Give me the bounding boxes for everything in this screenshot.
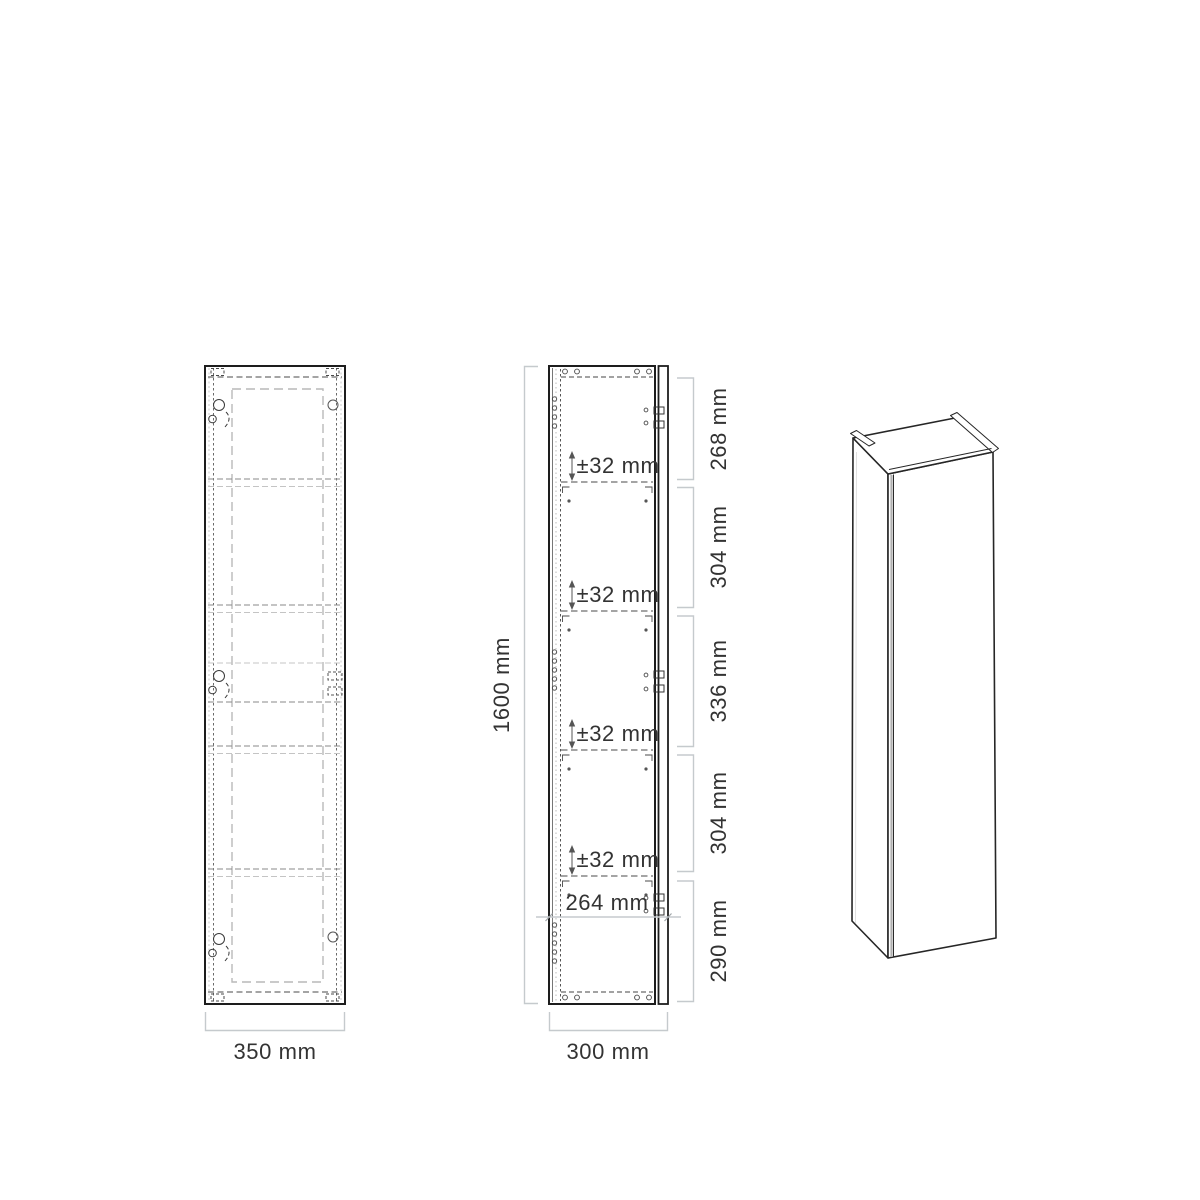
segment-label-1: 268 mm — [708, 387, 730, 470]
shelf-adjust-label-4: ±32 mm — [577, 849, 660, 871]
front-width-dimension-bracket — [206, 1012, 345, 1031]
side-width-dimension-bracket — [550, 1012, 668, 1031]
shelf-adjust-label-1: ±32 mm — [577, 455, 660, 477]
iso-left-panel — [852, 438, 888, 958]
shelf-adjust-label-3: ±32 mm — [577, 723, 660, 745]
segment-bracket-4 — [677, 755, 694, 872]
side-width-dimension-label: 300 mm — [566, 1041, 649, 1063]
segment-label-5: 290 mm — [708, 899, 730, 982]
segment-bracket-3 — [677, 616, 694, 747]
segment-label-3: 336 mm — [708, 639, 730, 722]
segment-label-4: 304 mm — [708, 771, 730, 854]
iso-door-front — [888, 452, 996, 958]
front-view-drawing — [205, 366, 345, 1004]
height-dimension-bracket — [525, 367, 539, 1004]
segment-bracket-1 — [677, 378, 694, 480]
segment-bracket-5 — [677, 881, 694, 1002]
cabinet-technical-drawing: 350 mm 300 mm 1600 mm 264 mm ±32 mm ±32 … — [0, 0, 1200, 1200]
front-width-dimension-label: 350 mm — [233, 1041, 316, 1063]
inner-width-dimension-label: 264 mm — [565, 892, 648, 914]
segment-bracket-2 — [677, 488, 694, 608]
height-dimension-label: 1600 mm — [491, 637, 513, 733]
segment-label-2: 304 mm — [708, 505, 730, 588]
isometric-view-drawing — [851, 413, 999, 959]
shelf-adjust-label-2: ±32 mm — [577, 584, 660, 606]
